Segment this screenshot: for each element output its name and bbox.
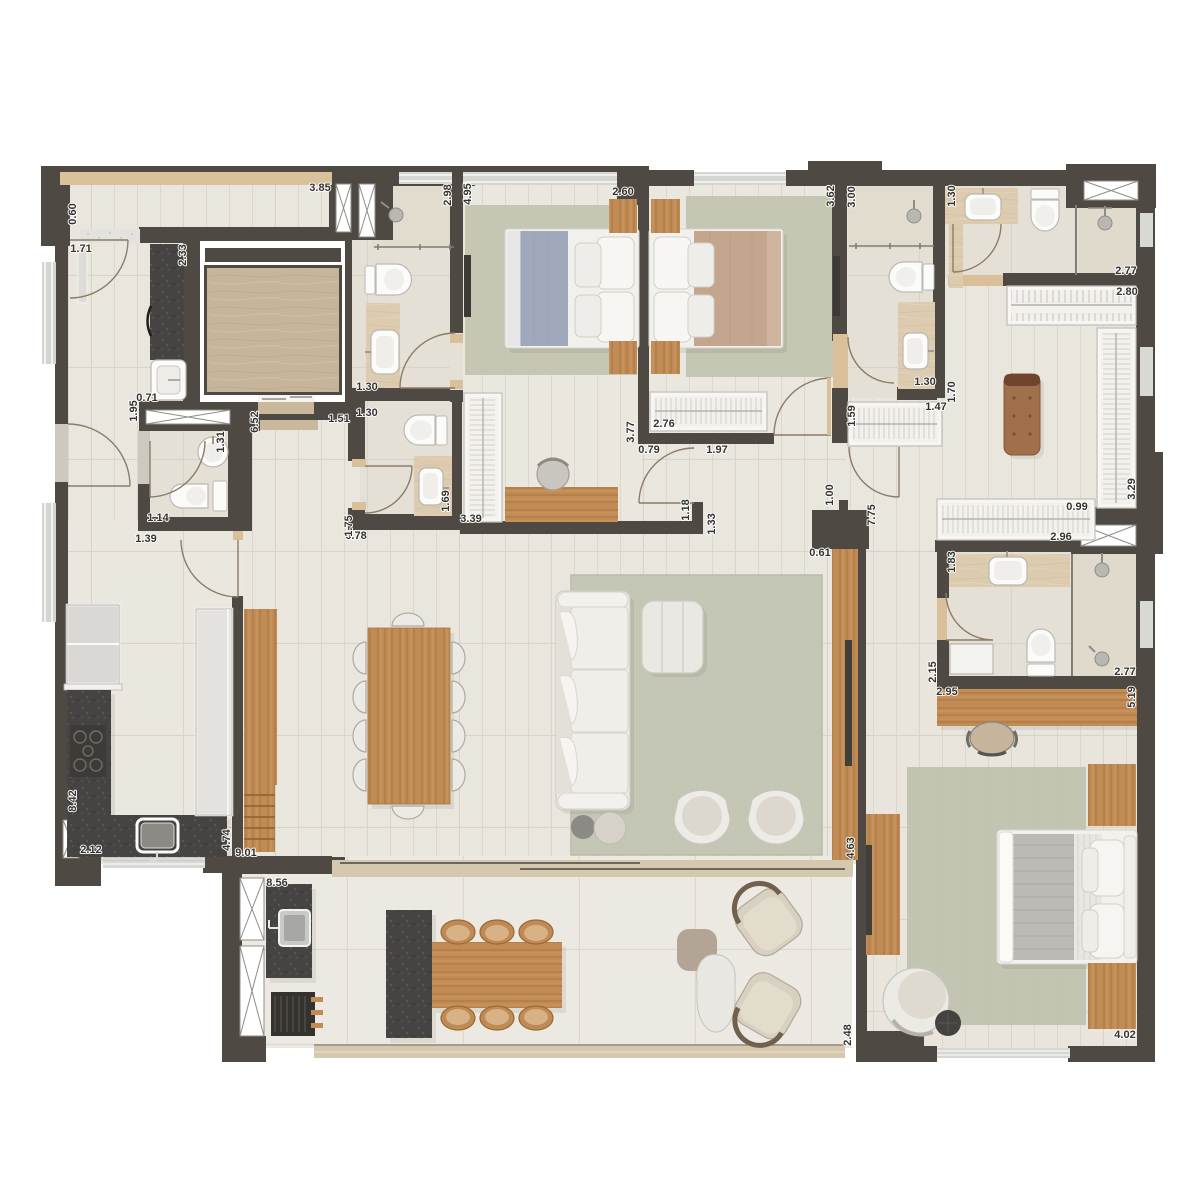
svg-text:1.39: 1.39	[135, 533, 156, 545]
svg-text:1.59: 1.59	[846, 405, 858, 426]
svg-text:2.48: 2.48	[842, 1024, 854, 1045]
svg-text:0.60: 0.60	[67, 203, 79, 224]
svg-text:3.62: 3.62	[825, 185, 837, 206]
svg-text:1.30: 1.30	[946, 185, 958, 206]
svg-text:2.15: 2.15	[927, 661, 939, 682]
svg-text:8.56: 8.56	[266, 877, 287, 889]
svg-text:2.12: 2.12	[80, 844, 101, 856]
svg-text:1.30: 1.30	[356, 407, 377, 419]
svg-text:3.29: 3.29	[1126, 478, 1138, 499]
svg-text:1.83: 1.83	[946, 551, 958, 572]
svg-text:1.30: 1.30	[356, 381, 377, 393]
svg-text:8.42: 8.42	[67, 790, 79, 811]
svg-text:3.77: 3.77	[625, 421, 637, 442]
svg-text:1.18: 1.18	[680, 499, 692, 520]
svg-text:1.47: 1.47	[925, 401, 946, 413]
svg-text:9.01: 9.01	[235, 847, 256, 859]
svg-text:2.76: 2.76	[653, 418, 674, 430]
svg-text:1.30: 1.30	[914, 376, 935, 388]
svg-text:2.60: 2.60	[612, 186, 633, 198]
svg-text:4.74: 4.74	[221, 828, 233, 850]
svg-text:4.95: 4.95	[462, 183, 474, 204]
svg-text:2.77: 2.77	[1114, 666, 1135, 678]
svg-text:1.71: 1.71	[70, 243, 91, 255]
svg-text:3.85: 3.85	[309, 182, 330, 194]
svg-text:2.95: 2.95	[936, 686, 957, 698]
svg-text:0.79: 0.79	[638, 444, 659, 456]
svg-text:4.02: 4.02	[1114, 1029, 1135, 1041]
svg-text:2.98: 2.98	[442, 184, 454, 205]
svg-text:1.33: 1.33	[706, 513, 718, 534]
svg-text:5.19: 5.19	[1126, 686, 1138, 707]
svg-text:2.96: 2.96	[1050, 531, 1071, 543]
svg-text:3.00: 3.00	[846, 186, 858, 207]
svg-text:0.61: 0.61	[809, 547, 830, 559]
svg-text:6.52: 6.52	[249, 411, 261, 432]
svg-text:1.95: 1.95	[128, 400, 140, 421]
svg-text:0.99: 0.99	[1066, 501, 1087, 513]
svg-text:1.31: 1.31	[215, 431, 227, 452]
svg-text:7.75: 7.75	[866, 504, 878, 525]
svg-text:2.77: 2.77	[1115, 265, 1136, 277]
svg-text:4.63: 4.63	[845, 837, 857, 858]
svg-text:1.14: 1.14	[147, 512, 169, 524]
svg-text:3.39: 3.39	[460, 513, 481, 525]
svg-text:2.80: 2.80	[1116, 286, 1137, 298]
svg-text:2.33: 2.33	[177, 244, 189, 265]
svg-text:1.70: 1.70	[946, 381, 958, 402]
svg-text:1.00: 1.00	[824, 484, 836, 505]
svg-text:1.75: 1.75	[343, 515, 355, 536]
svg-text:1.51: 1.51	[328, 413, 349, 425]
svg-text:1.69: 1.69	[440, 490, 452, 511]
svg-text:1.97: 1.97	[706, 444, 727, 456]
